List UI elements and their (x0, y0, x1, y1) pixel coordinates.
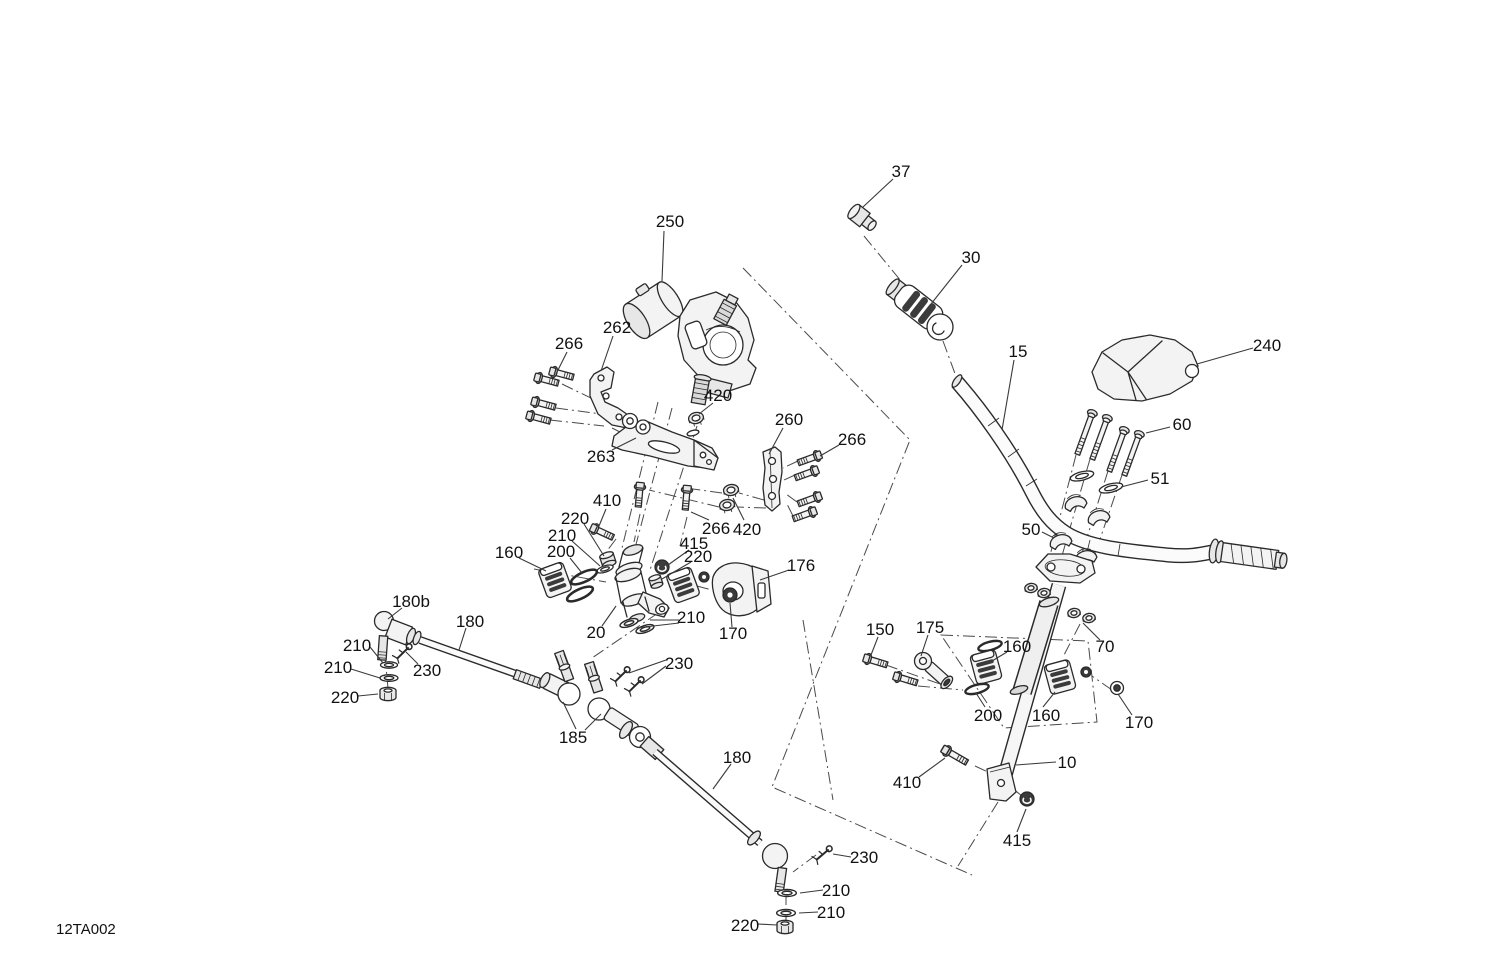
washer-210-b2 (777, 909, 796, 916)
callout-260: 260 (775, 410, 803, 429)
bushing-160-right-lower (1044, 659, 1077, 695)
callout-160-rl: 160 (1032, 706, 1060, 725)
callout-200-a: 200 (547, 542, 575, 561)
callout-51: 51 (1151, 469, 1170, 488)
callout-leader-150 (871, 637, 878, 655)
callout-leader-262 (601, 336, 613, 371)
callout-160-a: 160 (495, 543, 523, 562)
handlebar-right-grip-area (1208, 538, 1289, 573)
callout-262: 262 (603, 318, 631, 337)
callout-415-right: 415 (1003, 831, 1031, 850)
callout-leader-210-b1 (800, 890, 823, 893)
bolts-266-right (791, 449, 823, 524)
part-176-clamp (712, 563, 771, 616)
parts-diagram-page: 3725030152402662624202602666026351410220… (0, 0, 1500, 971)
nuts-420-right (719, 483, 740, 514)
callout-240: 240 (1253, 336, 1281, 355)
callout-leader-210-a (572, 541, 600, 566)
callout-180-lower: 180 (723, 748, 751, 767)
washer-51-1 (1069, 469, 1094, 483)
callout-185: 185 (559, 728, 587, 747)
nut-220-left (380, 687, 396, 700)
nut-420-upper (687, 411, 706, 437)
callout-420-bottom: 420 (733, 520, 761, 539)
callout-160-ru: 160 (1003, 637, 1031, 656)
callout-leader-410-right (919, 758, 945, 777)
callout-leader-200-r (976, 693, 985, 707)
callout-leader-220-bottom (758, 924, 777, 925)
callout-leader-250 (662, 231, 664, 281)
callout-230-bottom: 230 (850, 848, 878, 867)
tie-rod-180-lower (640, 737, 787, 893)
callout-leader-60 (1146, 427, 1170, 433)
tie-rod-end-lower (763, 844, 788, 869)
callout-leader-420-bottom (733, 498, 744, 520)
callout-leader-210-b2 (799, 912, 818, 913)
callout-10: 10 (1058, 753, 1077, 772)
part-240-handlebar-pad (1092, 335, 1199, 401)
callout-263: 263 (587, 447, 615, 466)
washer-210-mid-2 (635, 623, 655, 635)
callout-410-right: 410 (893, 773, 921, 792)
washer-210-mid-1 (619, 617, 639, 629)
bolts-60 (1073, 408, 1146, 477)
callout-leader-15 (1002, 360, 1014, 430)
callout-230-upper: 230 (413, 661, 441, 680)
nut-220-bottom (777, 920, 793, 933)
callout-leader-170-right (1118, 694, 1132, 715)
bolts-266-left (525, 365, 575, 426)
callout-60: 60 (1173, 415, 1192, 434)
callout-leader-185 (563, 702, 576, 729)
callout-leader-30 (931, 265, 962, 304)
callout-176: 176 (787, 556, 815, 575)
cotter-pin-230-c2 (623, 676, 648, 697)
washer-210-b1 (778, 889, 797, 896)
callout-leader-240 (1197, 348, 1253, 364)
callout-410-left: 410 (593, 491, 621, 510)
part-30-grip (882, 274, 953, 340)
callout-leader-10 (1016, 762, 1056, 765)
callout-leader-180-upper (459, 628, 466, 650)
part-15-handlebar (950, 373, 1288, 573)
callout-266-left: 266 (555, 334, 583, 353)
callout-leader-37 (863, 179, 893, 207)
bushing-mid (666, 566, 701, 603)
callout-leader-220-l (358, 694, 378, 696)
callout-180-upper: 180 (456, 612, 484, 631)
spacer-220-b (648, 574, 663, 590)
callout-leader-410-left (599, 509, 606, 526)
callout-150: 150 (866, 620, 894, 639)
callout-230-center: 230 (665, 654, 693, 673)
callout-210-l1: 210 (343, 636, 371, 655)
part-250-power-steering-unit (614, 272, 756, 405)
part-260-bracket (763, 447, 782, 511)
nut-415-a (655, 560, 669, 574)
callout-250: 250 (656, 212, 684, 231)
bolt-410-left (589, 522, 616, 543)
callout-220-bottom: 220 (731, 916, 759, 935)
callout-170-left: 170 (719, 624, 747, 643)
callout-20: 20 (587, 623, 606, 642)
callout-210-l2: 210 (324, 658, 352, 677)
exploded-parts-diagram: 3725030152402662624202602666026351410220… (0, 0, 1500, 971)
part-37-end-cap (846, 202, 880, 234)
callout-leader-50 (1042, 532, 1054, 538)
callout-200-r: 200 (974, 706, 1002, 725)
washer-210-l2 (380, 675, 398, 682)
part-185-center-link (538, 650, 651, 747)
bushing-160-right-upper (970, 649, 1003, 685)
bolts-266-lower (633, 482, 693, 510)
callout-leader-230-center (629, 660, 666, 673)
bushing-160-left (538, 561, 573, 598)
callout-15: 15 (1009, 342, 1028, 361)
nut-170-right (1111, 682, 1124, 695)
washer-51-2 (1098, 481, 1123, 495)
callout-180b: 180b (392, 592, 430, 611)
callout-266-right: 266 (838, 430, 866, 449)
callout-leader-230-center (642, 666, 666, 684)
diagram-code: 12TA002 (56, 921, 116, 938)
callout-50: 50 (1022, 520, 1041, 539)
callout-210-b1: 210 (822, 881, 850, 900)
callout-210-mid: 210 (677, 608, 705, 627)
callout-220-b: 220 (684, 547, 712, 566)
callout-70: 70 (1096, 637, 1115, 656)
part-175-link (915, 653, 955, 691)
callout-170-right: 170 (1125, 713, 1153, 732)
nut-415-right (1020, 792, 1034, 806)
bolts-150 (862, 652, 919, 688)
callout-leader-230-bottom (833, 854, 851, 857)
callout-leader-160-rl (1043, 692, 1055, 707)
callout-leader-51 (1121, 480, 1148, 487)
callout-175: 175 (916, 618, 944, 637)
tie-rod-end-180b (375, 612, 423, 661)
callout-leader-180-lower (713, 764, 731, 789)
callout-220-l: 220 (331, 688, 359, 707)
cotter-pin-230-bottom (811, 845, 835, 865)
nut-mid-small (699, 572, 709, 582)
callout-210-b2: 210 (817, 903, 845, 922)
callout-leader-210-l2 (351, 669, 380, 678)
cotter-pin-230-upper (391, 643, 416, 664)
callout-420-upper: 420 (704, 386, 732, 405)
callout-leader-266-right (820, 445, 839, 456)
callout-30: 30 (962, 248, 981, 267)
callout-37: 37 (892, 162, 911, 181)
callout-leader-415-right (1017, 809, 1026, 832)
cotter-pin-230-c1 (609, 666, 634, 687)
bolt-410-right (940, 744, 970, 768)
nut-small-right (1081, 667, 1091, 677)
